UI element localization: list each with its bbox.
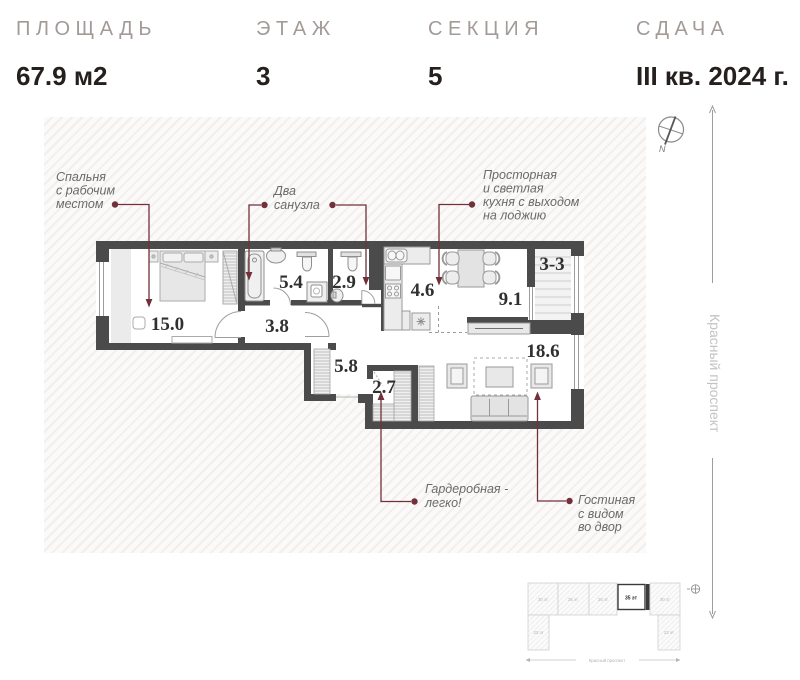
svg-text:с рабочим: с рабочим — [56, 184, 115, 198]
svg-text:Гостиная: Гостиная — [578, 493, 635, 507]
svg-text:15.0: 15.0 — [151, 314, 184, 335]
svg-text:4.6: 4.6 — [411, 280, 435, 301]
svg-text:на лоджию: на лоджию — [483, 209, 547, 223]
svg-text:30 эт: 30 эт — [660, 597, 670, 602]
svg-text:во двор: во двор — [578, 520, 622, 534]
svg-text:и светлая: и светлая — [483, 182, 544, 196]
svg-text:Два: Два — [272, 184, 296, 198]
svg-text:18.6: 18.6 — [526, 341, 559, 362]
svg-text:легко!: легко! — [424, 496, 462, 510]
svg-text:N: N — [659, 144, 666, 154]
svg-text:9.1: 9.1 — [499, 289, 523, 310]
svg-text:кухня с выходом: кухня с выходом — [483, 195, 580, 209]
svg-text:санузла: санузла — [274, 198, 320, 212]
svg-text:Спальня: Спальня — [56, 170, 106, 184]
svg-text:местом: местом — [56, 197, 104, 211]
svg-text:Гардеробная -: Гардеробная - — [425, 482, 508, 496]
svg-text:35 эт: 35 эт — [625, 596, 638, 602]
svg-text:23 эт: 23 эт — [664, 630, 674, 635]
svg-text:2.9: 2.9 — [332, 272, 356, 293]
svg-text:с видом: с видом — [578, 507, 624, 521]
svg-text:25 эт: 25 эт — [598, 597, 608, 602]
svg-text:Просторная: Просторная — [483, 168, 557, 182]
svg-text:35 эт: 35 эт — [568, 597, 578, 602]
svg-text:3-3: 3-3 — [539, 254, 564, 275]
svg-text:5.4: 5.4 — [279, 272, 303, 293]
svg-text:23 эт: 23 эт — [533, 630, 543, 635]
svg-text:5.8: 5.8 — [334, 356, 358, 377]
svg-text:2.7: 2.7 — [372, 377, 396, 398]
svg-text:30 эт: 30 эт — [538, 597, 548, 602]
svg-text:Красный проспект: Красный проспект — [707, 314, 723, 433]
svg-text:Красный проспект: Красный проспект — [589, 658, 625, 663]
svg-text:3.8: 3.8 — [265, 316, 289, 337]
